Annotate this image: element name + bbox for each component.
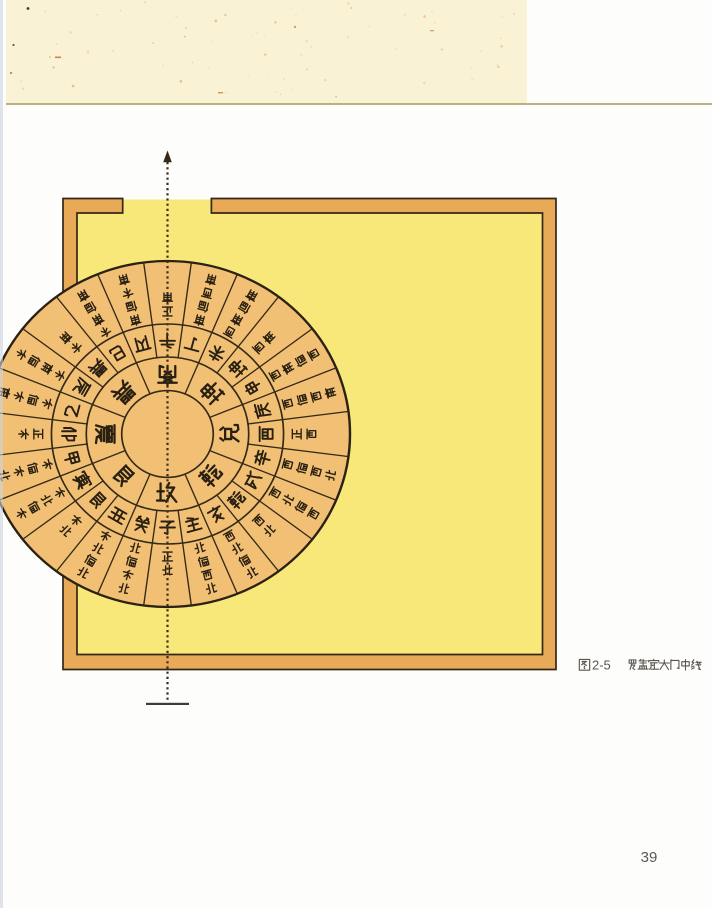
svg-text:39: 39 (641, 849, 658, 866)
svg-text:2-5: 2-5 (592, 658, 611, 673)
